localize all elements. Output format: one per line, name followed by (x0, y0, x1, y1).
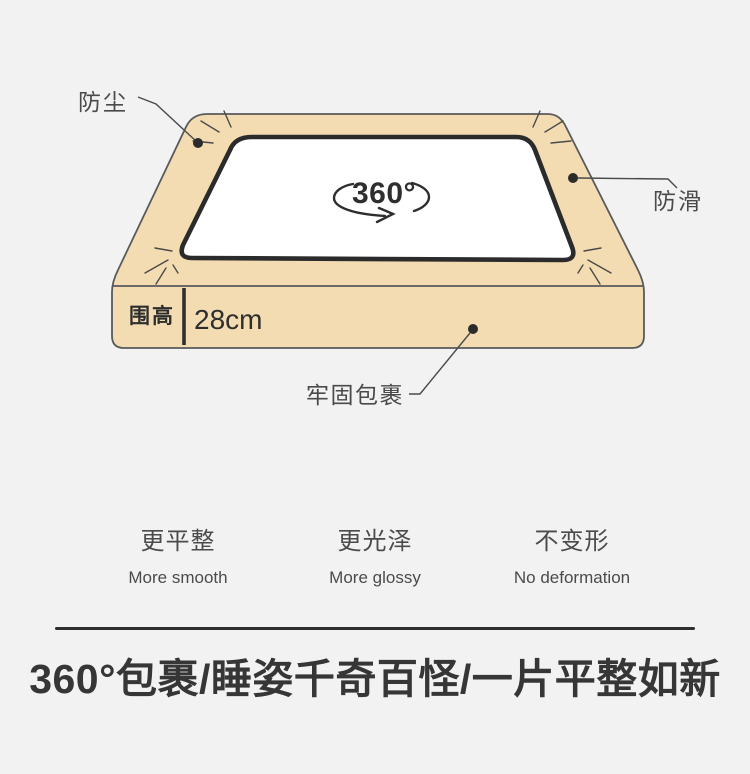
features-row: 更平整 More smooth 更光泽 More glossy 不变形 No d… (0, 527, 750, 588)
feature-no-deformation-en: No deformation (486, 567, 658, 588)
feature-glossy-zh: 更光泽 (289, 527, 461, 557)
feature-no-deformation: 不变形 No deformation (486, 527, 658, 588)
callout-dustproof-dot (193, 138, 203, 148)
callout-wrap-label: 牢固包裹 (306, 382, 404, 408)
section-divider (55, 627, 695, 630)
feature-smooth-en: More smooth (92, 567, 264, 588)
page-title: 360°包裹/睡姿千奇百怪/一片平整如新 (0, 655, 750, 703)
feature-smooth-zh: 更平整 (92, 527, 264, 557)
product-infographic: 360° 围高 28cm 防尘 防滑 (0, 0, 750, 774)
height-value: 28cm (194, 304, 262, 335)
feature-glossy-en: More glossy (289, 567, 461, 588)
height-label: 围高 (129, 304, 175, 328)
feature-no-deformation-zh: 不变形 (486, 527, 658, 557)
callout-antislip-dot (568, 173, 578, 183)
callout-dustproof-label: 防尘 (78, 89, 128, 115)
rotation-text: 360° (352, 177, 416, 210)
feature-glossy: 更光泽 More glossy (289, 527, 461, 588)
feature-smooth: 更平整 More smooth (92, 527, 264, 588)
callout-wrap-dot (468, 324, 478, 334)
mattress-illustration: 360° 围高 28cm 防尘 防滑 (0, 0, 750, 470)
callout-antislip-label: 防滑 (653, 188, 703, 214)
